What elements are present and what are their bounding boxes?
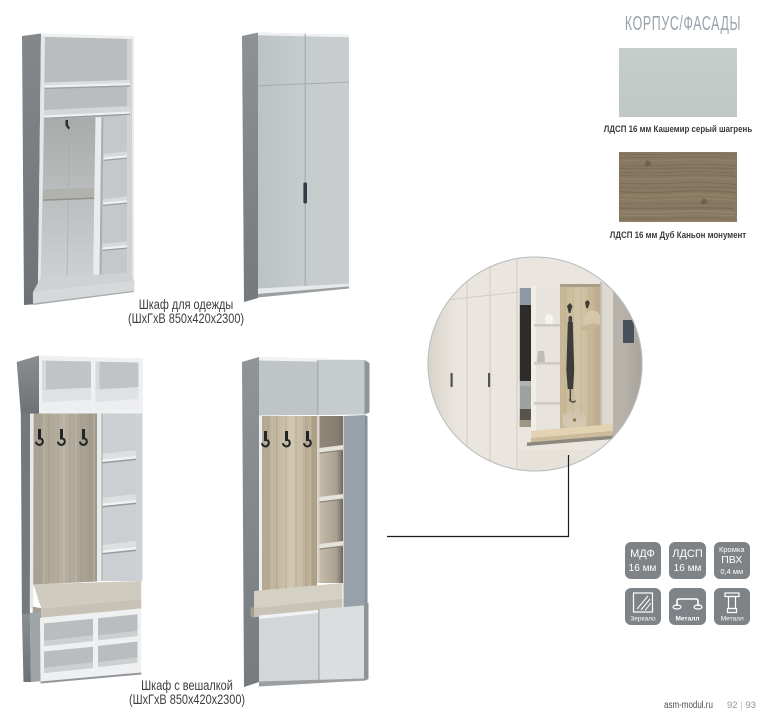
svg-text:Металл: Металл: [675, 616, 699, 623]
svg-text:Металл: Металл: [720, 616, 743, 623]
svg-text:Зеркало: Зеркало: [630, 616, 656, 623]
